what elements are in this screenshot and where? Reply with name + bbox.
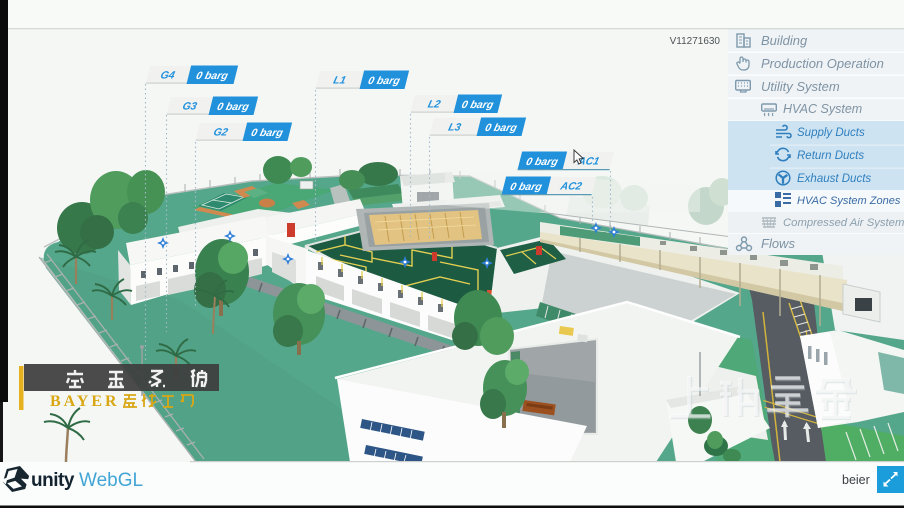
- svg-text:beier: beier: [842, 473, 870, 487]
- svg-text:Compressed Air System: Compressed Air System: [783, 217, 904, 229]
- svg-text:Supply Ducts: Supply Ducts: [797, 127, 865, 139]
- svg-text:V11271630: V11271630: [670, 36, 721, 47]
- svg-text:WebGL: WebGL: [79, 470, 143, 491]
- svg-text:Building: Building: [761, 33, 808, 48]
- svg-text:Return Ducts: Return Ducts: [797, 150, 864, 162]
- svg-text:AC2: AC2: [558, 181, 583, 193]
- svg-text:HVAC System Zones: HVAC System Zones: [797, 195, 901, 207]
- svg-text:0 barg: 0 barg: [195, 70, 230, 82]
- svg-text:HVAC System: HVAC System: [783, 102, 862, 116]
- svg-text:Flows: Flows: [761, 236, 795, 251]
- svg-text:0 barg: 0 barg: [460, 99, 495, 111]
- svg-text:0 barg: 0 barg: [216, 101, 251, 113]
- svg-text:0 barg: 0 barg: [525, 156, 560, 168]
- svg-text:0 barg: 0 barg: [367, 75, 402, 87]
- svg-text:Exhaust Ducts: Exhaust Ducts: [797, 173, 871, 185]
- svg-text:BAYER: BAYER: [50, 393, 120, 410]
- svg-text:Utility System: Utility System: [761, 79, 840, 94]
- svg-text:0 barg: 0 barg: [250, 127, 285, 139]
- svg-text:Production Operation: Production Operation: [761, 56, 884, 71]
- svg-text:0 barg: 0 barg: [509, 181, 544, 193]
- svg-text:0 barg: 0 barg: [484, 122, 519, 134]
- svg-text:unity: unity: [31, 470, 75, 491]
